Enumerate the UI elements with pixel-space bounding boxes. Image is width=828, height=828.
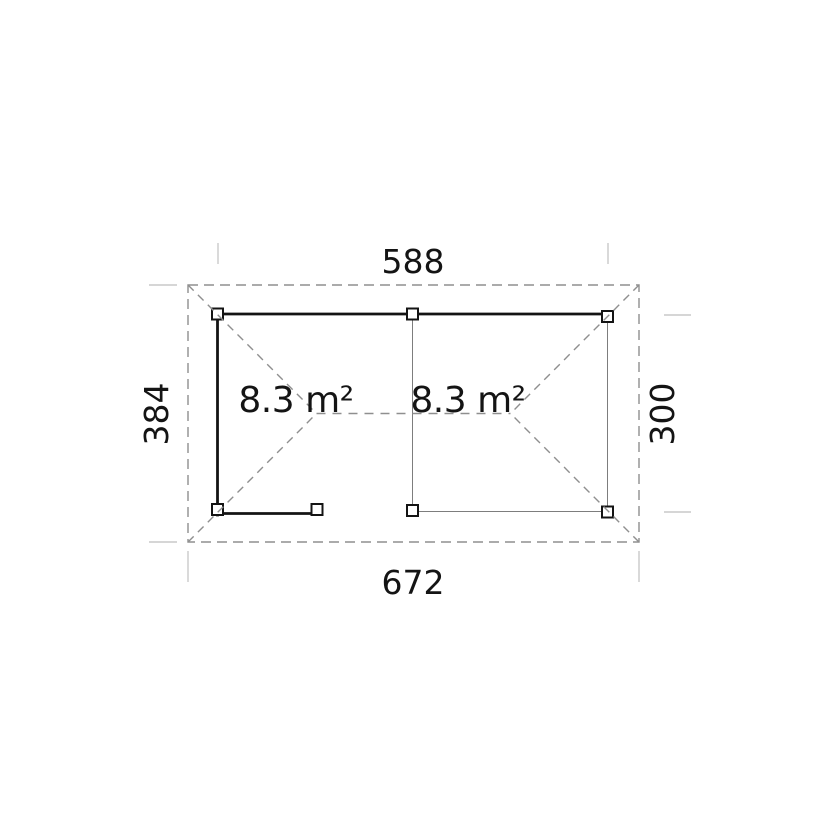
post-door-opening xyxy=(312,504,323,515)
dimension-right-depth: 300 xyxy=(643,383,682,446)
post-top-middle xyxy=(407,309,418,320)
floor-plan-page: 588 672 384 300 8.3 m² 8.3 m² xyxy=(0,0,828,828)
dimension-bottom-width: 672 xyxy=(382,563,445,602)
hip-line-bottom-left xyxy=(188,414,317,543)
post-bottom-middle xyxy=(407,505,418,516)
hip-line-top-right xyxy=(511,285,640,414)
dimension-top-width: 588 xyxy=(382,242,445,281)
post-bottom-right xyxy=(602,507,613,518)
floor-plan-drawing: 588 672 384 300 8.3 m² 8.3 m² xyxy=(0,0,828,828)
hip-line-bottom-right xyxy=(511,414,640,543)
dimension-left-depth: 384 xyxy=(137,383,176,446)
left-room-area-label: 8.3 m² xyxy=(238,380,353,421)
right-room-area-label: 8.3 m² xyxy=(410,380,525,421)
